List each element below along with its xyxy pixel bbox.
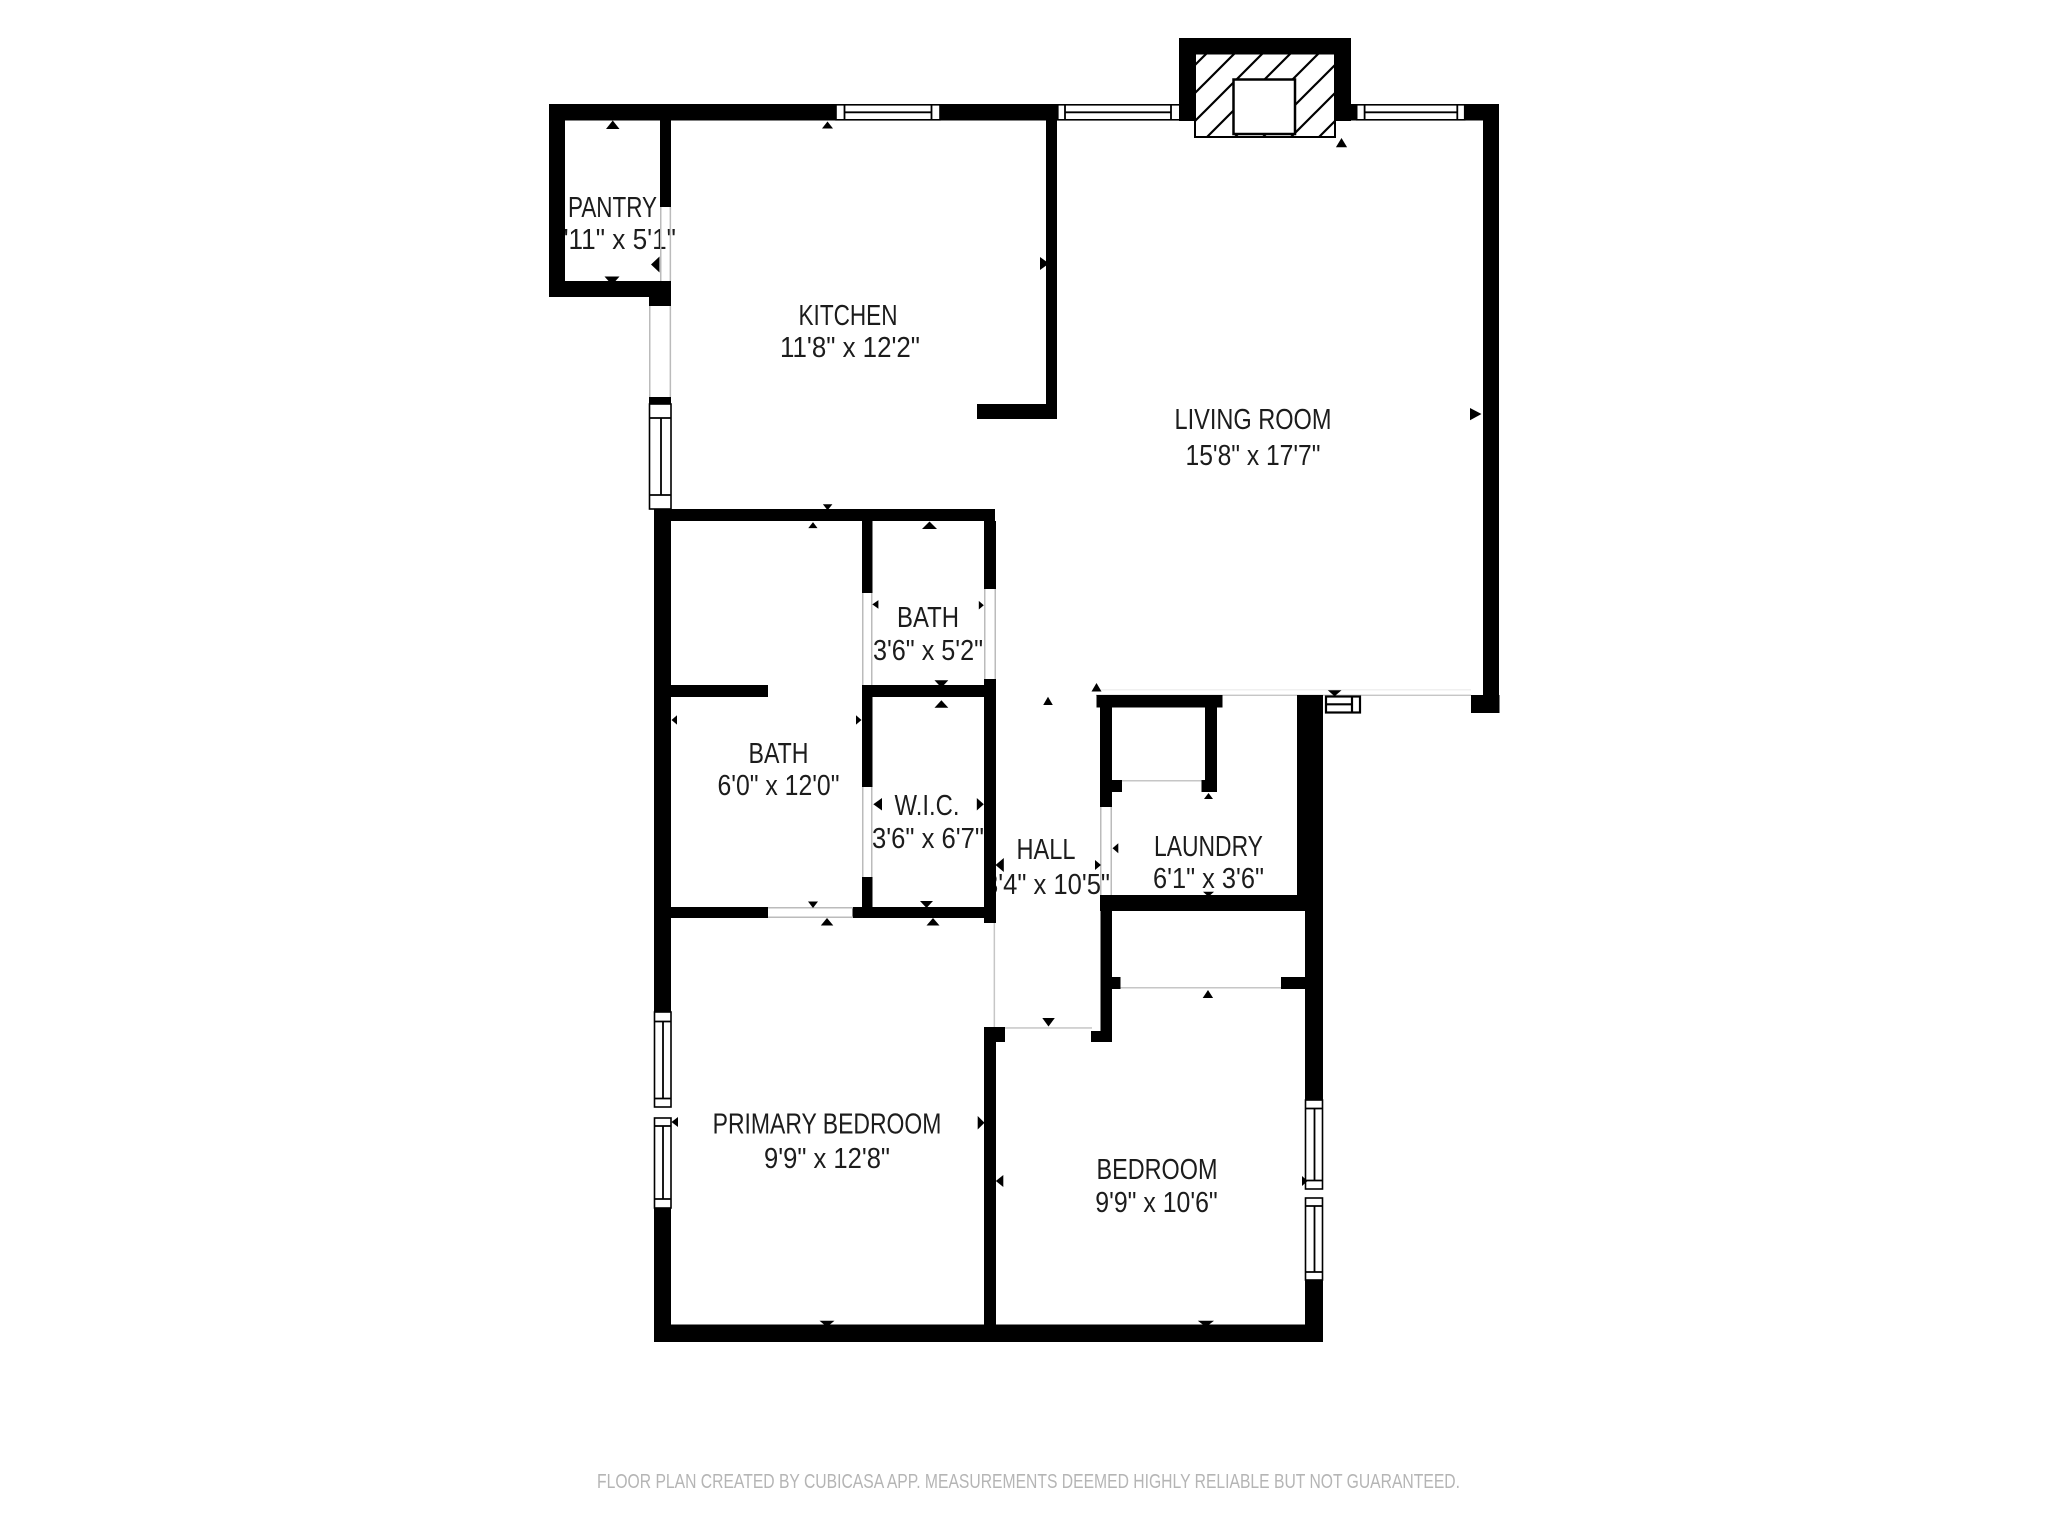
svg-text:2'11" x 5'1": 2'11" x 5'1" (549, 223, 676, 256)
svg-text:11'8" x 12'2": 11'8" x 12'2" (780, 331, 920, 364)
svg-text:9'9" x 10'6": 9'9" x 10'6" (1095, 1186, 1217, 1218)
svg-text:LIVING ROOM: LIVING ROOM (1175, 403, 1332, 436)
svg-text:W.I.C.: W.I.C. (895, 789, 960, 822)
svg-text:HALL: HALL (1017, 833, 1076, 866)
svg-text:PRIMARY BEDROOM: PRIMARY BEDROOM (713, 1107, 942, 1140)
svg-text:3'4" x 10'5": 3'4" x 10'5" (984, 867, 1110, 900)
svg-text:3'6" x 6'7": 3'6" x 6'7" (872, 821, 984, 854)
svg-text:KITCHEN: KITCHEN (799, 298, 898, 331)
svg-text:LAUNDRY: LAUNDRY (1154, 829, 1263, 862)
svg-text:FLOOR PLAN CREATED BY CUBICASA: FLOOR PLAN CREATED BY CUBICASA APP. MEAS… (597, 1470, 1460, 1492)
svg-text:BATH: BATH (749, 736, 809, 769)
svg-text:15'8" x 17'7": 15'8" x 17'7" (1186, 439, 1321, 471)
svg-text:BEDROOM: BEDROOM (1097, 1153, 1218, 1186)
svg-text:6'1" x 3'6": 6'1" x 3'6" (1153, 861, 1264, 894)
svg-text:6'0" x 12'0": 6'0" x 12'0" (717, 769, 839, 801)
svg-text:9'9" x 12'8": 9'9" x 12'8" (764, 1141, 890, 1174)
svg-text:BATH: BATH (897, 601, 959, 634)
svg-text:3'6" x 5'2": 3'6" x 5'2" (873, 633, 983, 666)
svg-text:PANTRY: PANTRY (568, 192, 657, 223)
